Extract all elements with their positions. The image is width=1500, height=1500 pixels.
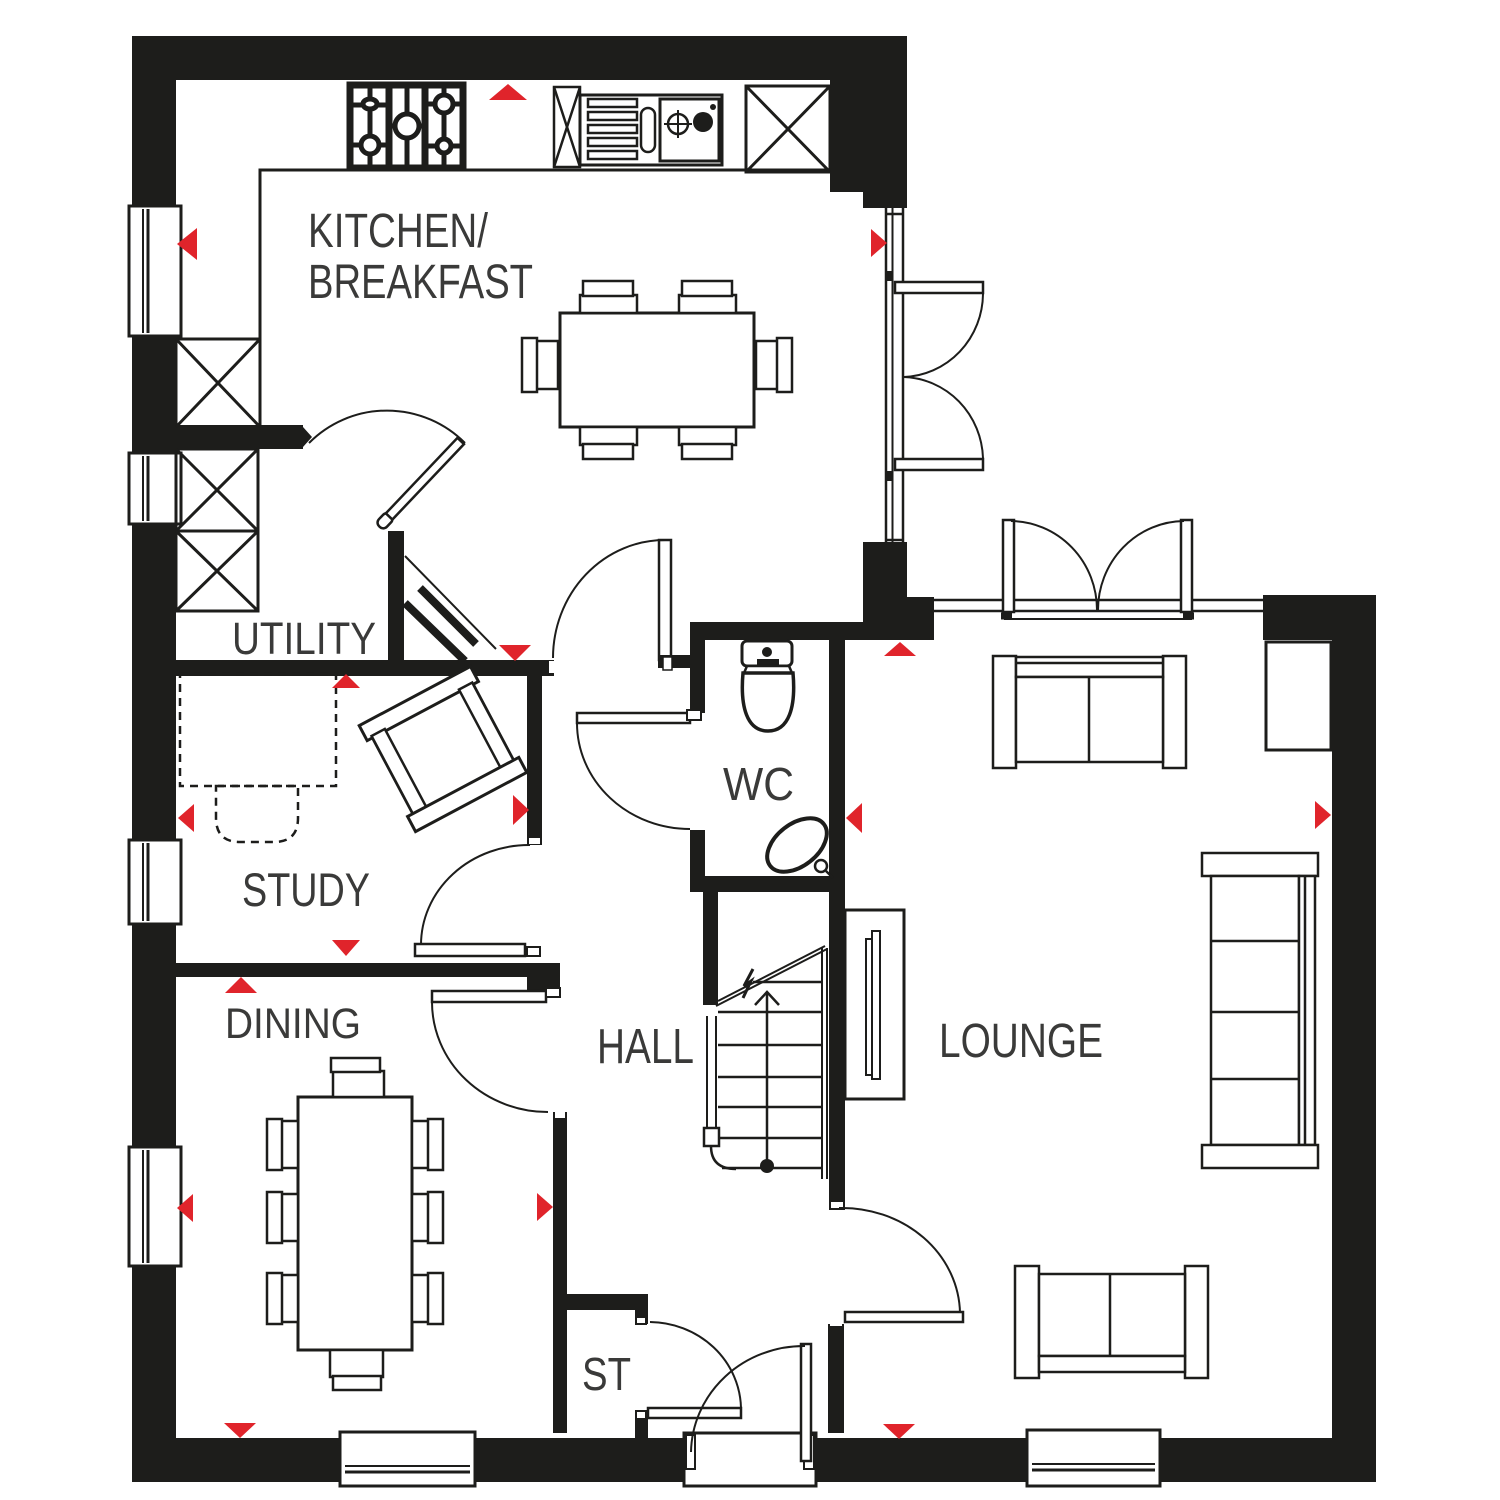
svg-text:UTILITY: UTILITY	[232, 613, 376, 664]
svg-text:STUDY: STUDY	[242, 863, 370, 916]
svg-text:BREAKFAST: BREAKFAST	[308, 256, 533, 309]
svg-text:WC: WC	[723, 758, 794, 810]
svg-text:DINING: DINING	[225, 1000, 361, 1048]
svg-text:HALL: HALL	[597, 1020, 694, 1074]
svg-text:ST: ST	[582, 1348, 631, 1400]
svg-text:LOUNGE: LOUNGE	[939, 1015, 1103, 1068]
svg-text:KITCHEN/: KITCHEN/	[308, 205, 489, 258]
